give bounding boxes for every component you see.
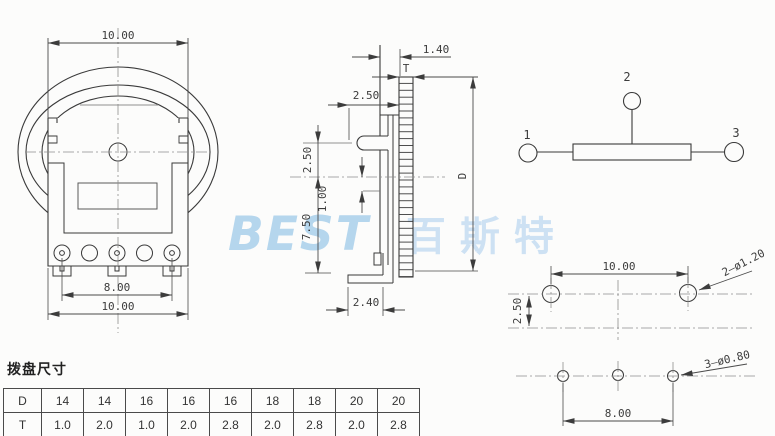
table-cell: 20 bbox=[378, 389, 420, 413]
front-view: 10.00 8.00 10.00 bbox=[18, 28, 218, 333]
dim-depth: 7.50 bbox=[300, 214, 313, 241]
dim-wiper: 1.00 bbox=[316, 186, 329, 213]
table-row-d: D 14 14 16 16 16 18 18 20 20 bbox=[4, 389, 420, 413]
technical-drawing: 10.00 8.00 10.00 bbox=[0, 0, 775, 436]
dial-size-title: 拨盘尺寸 bbox=[7, 359, 67, 379]
dim-foot: 2.40 bbox=[353, 296, 380, 309]
table-cell: 16 bbox=[168, 389, 210, 413]
dim-hub: 2.50 bbox=[353, 89, 380, 102]
table-cell: 14 bbox=[42, 389, 84, 413]
bent-leg bbox=[348, 253, 393, 283]
side-view: 1.40 T 2.50 2.50 1.00 7.50 2.40 D bbox=[290, 43, 478, 316]
table-cell: 2.0 bbox=[336, 413, 378, 436]
table-cell: 20 bbox=[336, 389, 378, 413]
row-header-d: D bbox=[4, 389, 42, 413]
table-cell: 18 bbox=[252, 389, 294, 413]
dim-pin-hole-span: 8.00 bbox=[605, 407, 632, 420]
table-cell: 2.8 bbox=[210, 413, 252, 436]
dim-body-width: 10.00 bbox=[101, 300, 134, 313]
table-row-t: T 1.0 2.0 1.0 2.0 2.8 2.0 2.8 2.0 2.8 bbox=[4, 413, 420, 436]
table-cell: 2.0 bbox=[252, 413, 294, 436]
dim-pin-span: 8.00 bbox=[104, 281, 131, 294]
table-cell: 1.0 bbox=[42, 413, 84, 436]
dim-row-gap: 2.50 bbox=[511, 298, 524, 325]
pcb-bottom-dimensions bbox=[563, 364, 747, 426]
table-cell: 2.8 bbox=[294, 413, 336, 436]
pcb-bottom-view: 8.00 3—ø0.80 bbox=[516, 348, 758, 426]
table-cell: 14 bbox=[84, 389, 126, 413]
pin1-node bbox=[519, 144, 537, 162]
pin1-label: 1 bbox=[523, 128, 530, 142]
pin2-node bbox=[624, 93, 641, 110]
label-thickness: T bbox=[403, 62, 410, 75]
mounting-tabs bbox=[53, 266, 181, 276]
pin3-node bbox=[725, 143, 744, 162]
label-diameter: D bbox=[456, 173, 469, 180]
resistor-element bbox=[573, 144, 691, 160]
schematic-view: 1 2 3 bbox=[519, 70, 744, 162]
dim-hole-span: 10.00 bbox=[602, 260, 635, 273]
table-cell: 16 bbox=[126, 389, 168, 413]
drawing-sheet: BEST百斯特 bbox=[0, 0, 775, 436]
actuator-tab bbox=[357, 136, 388, 150]
dim-tab-offset: 2.50 bbox=[301, 147, 314, 174]
pcb-top-dimensions bbox=[529, 266, 752, 326]
table-cell: 2.8 bbox=[378, 413, 420, 436]
table-cell: 18 bbox=[294, 389, 336, 413]
dim-face-gap: 1.40 bbox=[423, 43, 450, 56]
pin3-label: 3 bbox=[732, 126, 739, 140]
pin2-label: 2 bbox=[623, 70, 630, 84]
table-cell: 1.0 bbox=[126, 413, 168, 436]
pcb-top-view: 10.00 2.50 2—ø1.20 bbox=[508, 247, 767, 340]
table-cell: 16 bbox=[210, 389, 252, 413]
dial-size-table: D 14 14 16 16 16 18 18 20 20 T 1.0 2.0 1… bbox=[3, 388, 420, 436]
dim-wheel-width: 10.00 bbox=[101, 29, 134, 42]
side-bump bbox=[374, 253, 381, 265]
row-header-t: T bbox=[4, 413, 42, 436]
table-cell: 2.0 bbox=[168, 413, 210, 436]
side-dimensions bbox=[305, 49, 478, 316]
table-cell: 2.0 bbox=[84, 413, 126, 436]
